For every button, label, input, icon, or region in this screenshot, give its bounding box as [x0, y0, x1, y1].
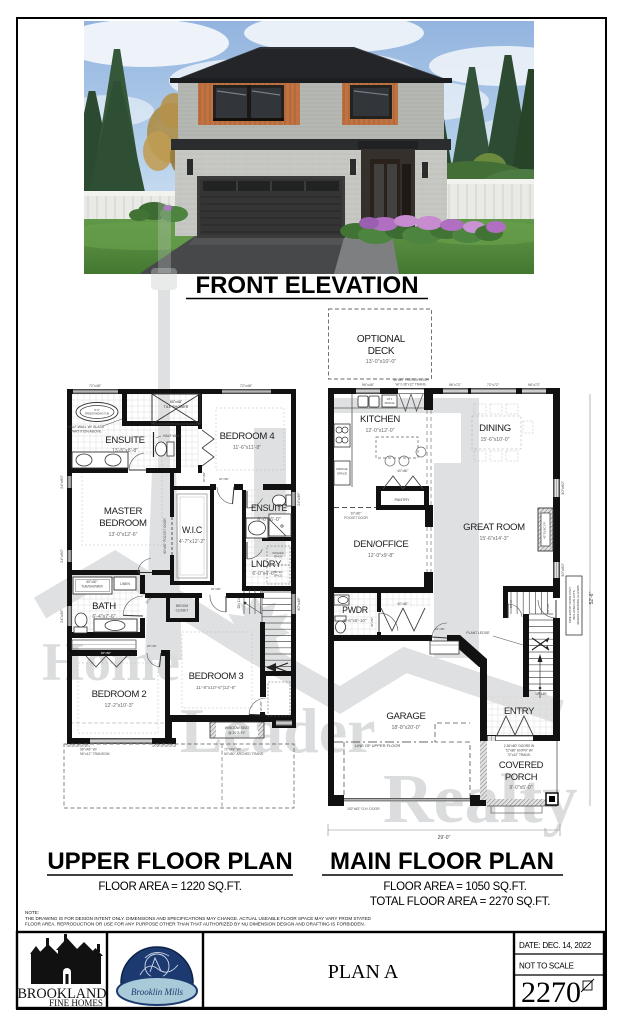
svg-text:Brooklin Mills: Brooklin Mills — [131, 987, 183, 997]
svg-text:FINE HOMES: FINE HOMES — [49, 998, 103, 1008]
svg-text:NOT TO SCALE: NOT TO SCALE — [519, 962, 574, 971]
svg-text:PLAN A: PLAN A — [328, 961, 399, 983]
svg-text:DATE: DEC. 14, 2022: DATE: DEC. 14, 2022 — [519, 941, 592, 950]
svg-text:2270: 2270 — [521, 976, 581, 1009]
